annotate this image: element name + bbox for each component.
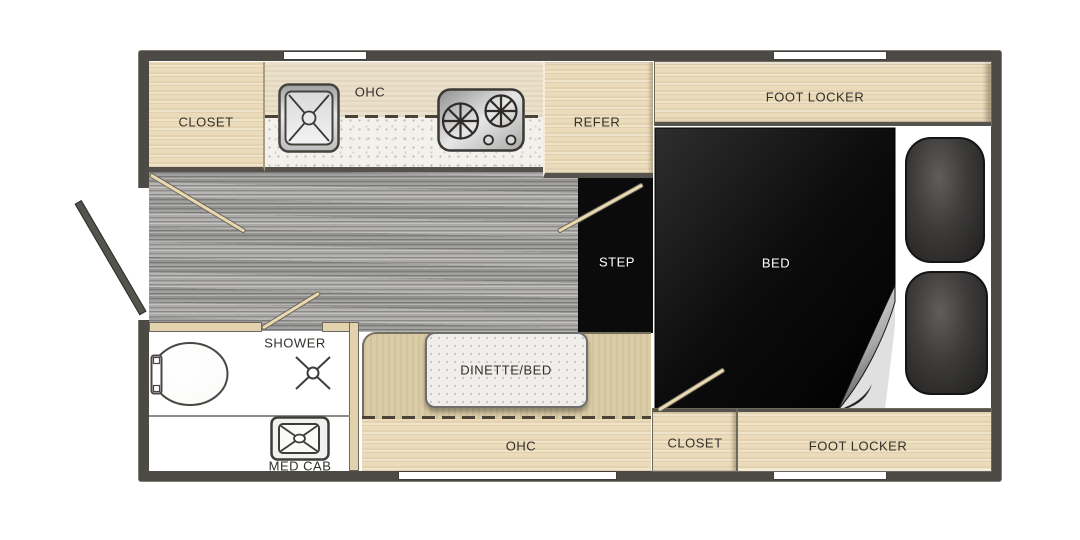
stove-icon xyxy=(437,88,525,152)
bed-label: BED xyxy=(762,256,790,271)
toilet-icon xyxy=(149,340,233,408)
bed-cushion-top xyxy=(905,137,985,263)
med-cab-sink-icon xyxy=(270,416,330,461)
shower-drain-icon xyxy=(293,354,333,392)
stove-knob xyxy=(507,136,516,145)
step-label: STEP xyxy=(599,255,635,270)
bathroom-side-wall xyxy=(349,322,359,471)
burner-left xyxy=(443,104,478,139)
stove-knob xyxy=(484,136,493,145)
sink-icon xyxy=(278,83,340,153)
window-bottom-right xyxy=(773,471,887,480)
floor-plan-canvas: CLOSET OHC REFER FOOT LOCKER BED STEP SH… xyxy=(0,0,1080,540)
closet-bottom-label: CLOSET xyxy=(667,436,722,451)
foot-locker-top-label: FOOT LOCKER xyxy=(766,90,864,105)
ohc-top-label: OHC xyxy=(355,85,385,100)
dinette-label: DINETTE/BED xyxy=(460,363,551,378)
window-bottom-left xyxy=(398,471,617,480)
floor xyxy=(149,172,580,332)
window-top-right xyxy=(773,51,887,60)
window-top-left xyxy=(283,51,367,60)
ohc-bottom-label: OHC xyxy=(506,439,536,454)
foot-locker-bottom-label: FOOT LOCKER xyxy=(809,439,907,454)
bathroom-wall-left xyxy=(149,322,262,332)
closet-top-label: CLOSET xyxy=(178,115,233,130)
bathroom-wall-right xyxy=(322,322,350,332)
bed-cushion-bottom xyxy=(905,271,988,395)
med-cab-label: MED CAB xyxy=(269,459,332,474)
shower-label: SHOWER xyxy=(264,336,326,351)
refer-label: REFER xyxy=(574,115,621,130)
burner-right xyxy=(486,96,517,127)
